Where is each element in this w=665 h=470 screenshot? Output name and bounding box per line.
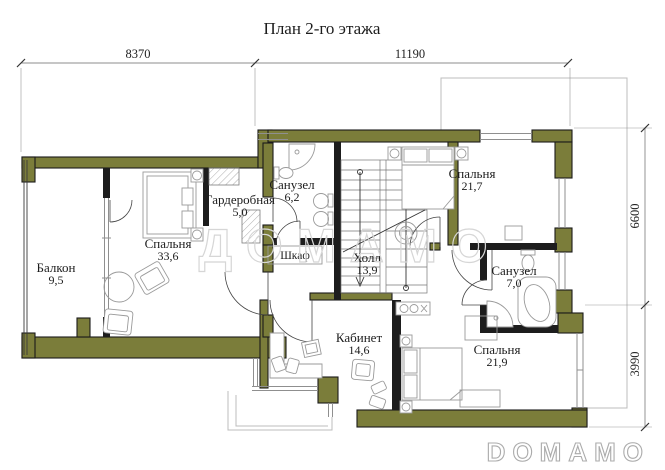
room-area-label: 6,2	[285, 190, 300, 204]
dim-top-left: 8370	[126, 47, 151, 61]
dimension-right: 6600 3990	[574, 124, 652, 431]
brand-logo: DOMAMO	[487, 437, 650, 467]
furniture-bedroom-33	[103, 169, 203, 335]
room-area-label: 33,6	[158, 249, 179, 263]
room-area-label: 5,0	[233, 205, 248, 219]
room-area-label: 21,9	[487, 355, 508, 369]
room-area-label: 9,5	[49, 273, 64, 287]
room-area-label: 7,0	[507, 276, 522, 290]
dim-top-right: 11190	[395, 47, 425, 61]
floor-plan-drawing: План 2-го этажа 8370 11190 6600 3990	[0, 0, 665, 470]
hall-dresser	[396, 302, 430, 315]
floor-plan-page: План 2-го этажа 8370 11190 6600 3990	[0, 0, 665, 470]
dim-right-upper: 6600	[628, 204, 642, 229]
room-area-label: 14,6	[349, 343, 370, 357]
room-area-label: 21,7	[462, 179, 483, 193]
page-title: План 2-го этажа	[264, 19, 381, 38]
dim-right-lower: 3990	[628, 352, 642, 377]
watermark: ДОМАМО	[199, 219, 502, 272]
